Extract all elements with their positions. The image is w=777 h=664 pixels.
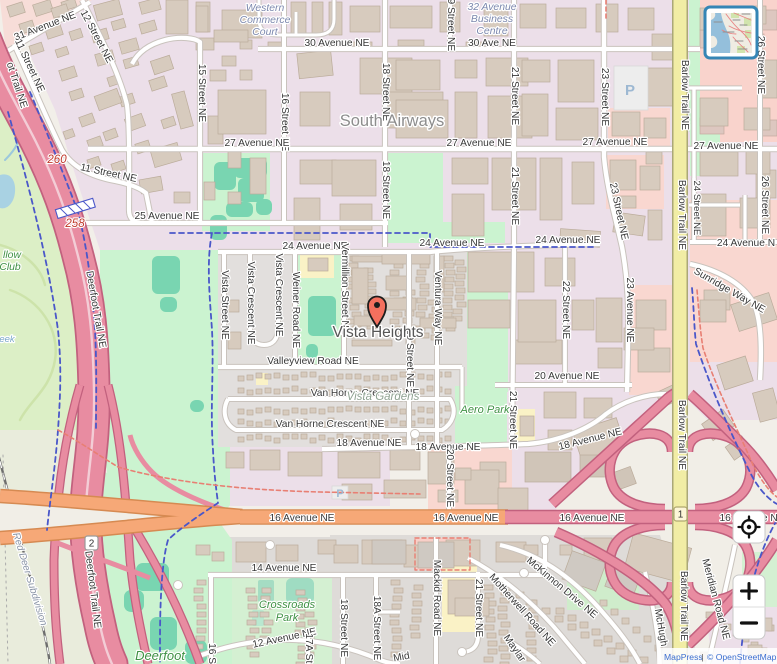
svg-text:Weiner Road NE: Weiner Road NE <box>290 272 301 348</box>
svg-text:24 Avenue NE: 24 Avenue NE <box>420 238 485 249</box>
svg-text:P: P <box>336 488 343 500</box>
svg-text:258: 258 <box>64 218 85 230</box>
svg-text:19 Street NE: 19 Street NE <box>445 0 456 51</box>
svg-text:Aero Park: Aero Park <box>460 404 510 416</box>
svg-text:30 Avenue NE: 30 Avenue NE <box>305 38 370 49</box>
svg-text:22 Street NE: 22 Street NE <box>560 281 571 340</box>
svg-text:20 Avenue NE: 20 Avenue NE <box>535 371 600 382</box>
svg-text:20 Street NE: 20 Street NE <box>444 449 455 508</box>
svg-text:21 Street NE: 21 Street NE <box>509 167 520 226</box>
svg-text:16 Avenue NE: 16 Avenue NE <box>434 513 499 524</box>
svg-text:Vermillion Street NE: Vermillion Street NE <box>339 243 350 334</box>
svg-text:P: P <box>625 82 635 99</box>
svg-text:Vista Crescent NE: Vista Crescent NE <box>245 261 256 344</box>
svg-text:23 Avenue NE: 23 Avenue NE <box>624 278 635 343</box>
svg-text:18 Street NE: 18 Street NE <box>380 161 391 220</box>
svg-text:16 Avenue NE: 16 Avenue NE <box>270 513 335 524</box>
svg-text:24 Avenue.NE: 24 Avenue.NE <box>536 235 601 246</box>
svg-text:14 Avenue NE: 14 Avenue NE <box>252 563 317 574</box>
svg-text:llow: llow <box>3 250 22 261</box>
svg-text:Western: Western <box>246 3 285 14</box>
svg-text:Barlow Trail NE: Barlow Trail NE <box>678 571 689 641</box>
svg-text:Barlow Trail NE: Barlow Trail NE <box>676 400 687 470</box>
svg-text:Club: Club <box>0 262 21 273</box>
svg-text:18 Avenue NE: 18 Avenue NE <box>337 438 402 449</box>
svg-text:21 Street NE: 21 Street NE <box>507 391 518 450</box>
svg-text:Barlow Trail NE: Barlow Trail NE <box>676 180 687 250</box>
svg-text:Vista Street NE: Vista Street NE <box>219 270 230 340</box>
svg-text:32 Avenue: 32 Avenue <box>467 2 516 13</box>
svg-text:Centre: Centre <box>476 26 507 37</box>
svg-text:© OpenStreetMap: © OpenStreetMap <box>707 652 777 662</box>
svg-text:|: | <box>702 652 704 662</box>
svg-text:Van Horne Crescent NE: Van Horne Crescent NE <box>276 419 385 430</box>
svg-text:27 Avenue NE: 27 Avenue NE <box>225 138 290 149</box>
svg-text:21 Street NE: 21 Street NE <box>509 67 520 126</box>
svg-text:Vista Gardens: Vista Gardens <box>347 391 420 403</box>
svg-text:1: 1 <box>678 510 684 521</box>
svg-text:Business: Business <box>471 14 513 25</box>
svg-text:17A Str: 17A Str <box>303 633 314 664</box>
svg-text:Ventura Way NE: Ventura Way NE <box>432 271 443 346</box>
svg-text:Mackid Road NE: Mackid Road NE <box>431 560 442 637</box>
svg-text:Court: Court <box>252 27 279 38</box>
svg-text:24 Avenue N: 24 Avenue N <box>717 238 775 249</box>
svg-text:eek: eek <box>0 334 16 345</box>
svg-text:260: 260 <box>46 154 67 166</box>
svg-text:21 Street NE: 21 Street NE <box>473 579 484 638</box>
svg-text:27 Avenue NE: 27 Avenue NE <box>583 137 648 148</box>
svg-text:15 Street NE: 15 Street NE <box>196 64 207 123</box>
svg-text:MapPress: MapPress <box>664 652 703 662</box>
svg-text:18 Street NE: 18 Street NE <box>338 599 349 658</box>
svg-text:Deerfoot: Deerfoot <box>135 648 186 663</box>
svg-text:26 Street NE: 26 Street NE <box>759 176 770 235</box>
svg-text:Commerce: Commerce <box>240 15 291 26</box>
svg-text:25 Avenue NE: 25 Avenue NE <box>135 211 200 222</box>
svg-text:Vista Crescent NE: Vista Crescent NE <box>273 253 284 336</box>
svg-text:18A Street NE: 18A Street NE <box>371 596 382 661</box>
svg-text:16 Avenue NE: 16 Avenue NE <box>560 513 625 524</box>
svg-text:24 Avenue NE: 24 Avenue NE <box>283 241 348 252</box>
svg-text:2: 2 <box>89 539 95 550</box>
svg-text:Valleyview Road NE: Valleyview Road NE <box>267 356 359 367</box>
svg-text:Crossroads: Crossroads <box>259 599 316 611</box>
svg-text:23 Street NE: 23 Street NE <box>599 68 610 127</box>
svg-text:Barlow Trail NE: Barlow Trail NE <box>679 60 690 130</box>
svg-text:30 Ave NE: 30 Ave NE <box>468 38 516 49</box>
svg-text:16 St: 16 St <box>206 643 217 664</box>
svg-text:27 Avenue NE: 27 Avenue NE <box>447 138 512 149</box>
svg-text:Park: Park <box>276 612 299 624</box>
svg-text:South Airways: South Airways <box>340 112 445 130</box>
svg-text:27 Avenue NE: 27 Avenue NE <box>694 141 759 152</box>
svg-text:24 Street NE: 24 Street NE <box>691 181 702 236</box>
